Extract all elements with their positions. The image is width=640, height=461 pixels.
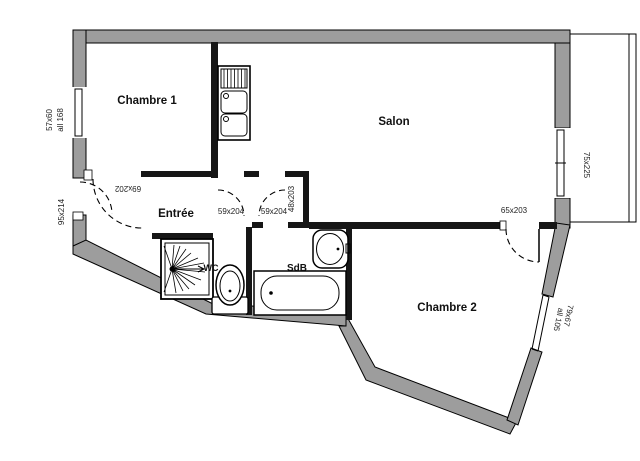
washbasin-drain [337, 248, 340, 251]
window-right [554, 128, 571, 198]
balcony-outline [570, 34, 636, 222]
wall-salon-south [309, 222, 500, 229]
dim-window-diagonal: 79x67 all 105 [551, 304, 575, 333]
wall-salon-south-stub [539, 222, 557, 229]
jamb-entry-door [73, 212, 83, 220]
wall-sdb-north-1 [252, 222, 263, 228]
room-label-wc: WC [204, 263, 219, 273]
chambre2-door-arc [506, 229, 539, 262]
dim-hall-door-left: 59x204 [218, 207, 245, 216]
window-diagonal [532, 295, 549, 351]
entry-door-arc [80, 182, 112, 214]
floor-plan: Chambre 1 Salon Entrée SdB WC Chambre 2 … [0, 0, 640, 461]
window-diagonal-line2 [532, 295, 543, 349]
balcony [570, 34, 636, 222]
wall-right-upper [555, 43, 570, 128]
wall-top [75, 30, 570, 43]
dim-entry-door: 95x214 [57, 198, 66, 225]
dim-chambre2-door: 65x203 [501, 206, 528, 215]
jamb-chambre2-door [500, 221, 506, 230]
washbasin-outline [313, 230, 348, 268]
door-swings [80, 179, 539, 262]
kitchen-drainboard-hatch [224, 69, 245, 88]
bathtub-icon [254, 271, 346, 315]
bathtub-drain [269, 291, 273, 295]
wall-entree-north-2 [244, 171, 259, 177]
dim-window-diagonal-sill: all 105 [551, 307, 565, 332]
kitchen-sink-icon [218, 66, 250, 140]
wall-entree-north-3 [285, 171, 309, 177]
bathtub-outline [254, 271, 346, 315]
window-diagonal-line1 [538, 297, 549, 351]
toilet-drain [229, 290, 232, 293]
dim-chambre1-door: 69x202 [114, 184, 141, 193]
dim-window-left-sill: all 168 [56, 108, 65, 132]
washbasin-icon [313, 230, 350, 268]
dim-window-left: 57x60 all 168 [45, 108, 65, 132]
dim-window-left-size: 57x60 [45, 109, 54, 131]
room-label-sdb: SdB [287, 263, 307, 274]
wall-chambre2-right-upper [542, 223, 570, 297]
window-left [72, 87, 87, 138]
dim-hall-door-right: 59x204 [261, 207, 288, 216]
dim-sdb-door: 48x203 [287, 185, 296, 212]
wall-chambre1-salon [211, 42, 218, 178]
wall-entree-salon [303, 177, 309, 223]
room-label-chambre2: Chambre 2 [417, 302, 476, 314]
room-label-chambre1: Chambre 1 [117, 95, 177, 107]
wall-chambre2-bottom [339, 315, 517, 434]
room-label-salon: Salon [378, 116, 409, 128]
jamb-chambre1-door [84, 170, 92, 180]
wall-left-upper [73, 30, 86, 88]
wall-chambre2-right-lower [507, 348, 542, 425]
window-left-opening [72, 87, 87, 138]
dim-window-right: 75x225 [582, 152, 591, 179]
room-label-entree: Entrée [158, 208, 194, 220]
wall-entree-north-1 [141, 171, 215, 177]
